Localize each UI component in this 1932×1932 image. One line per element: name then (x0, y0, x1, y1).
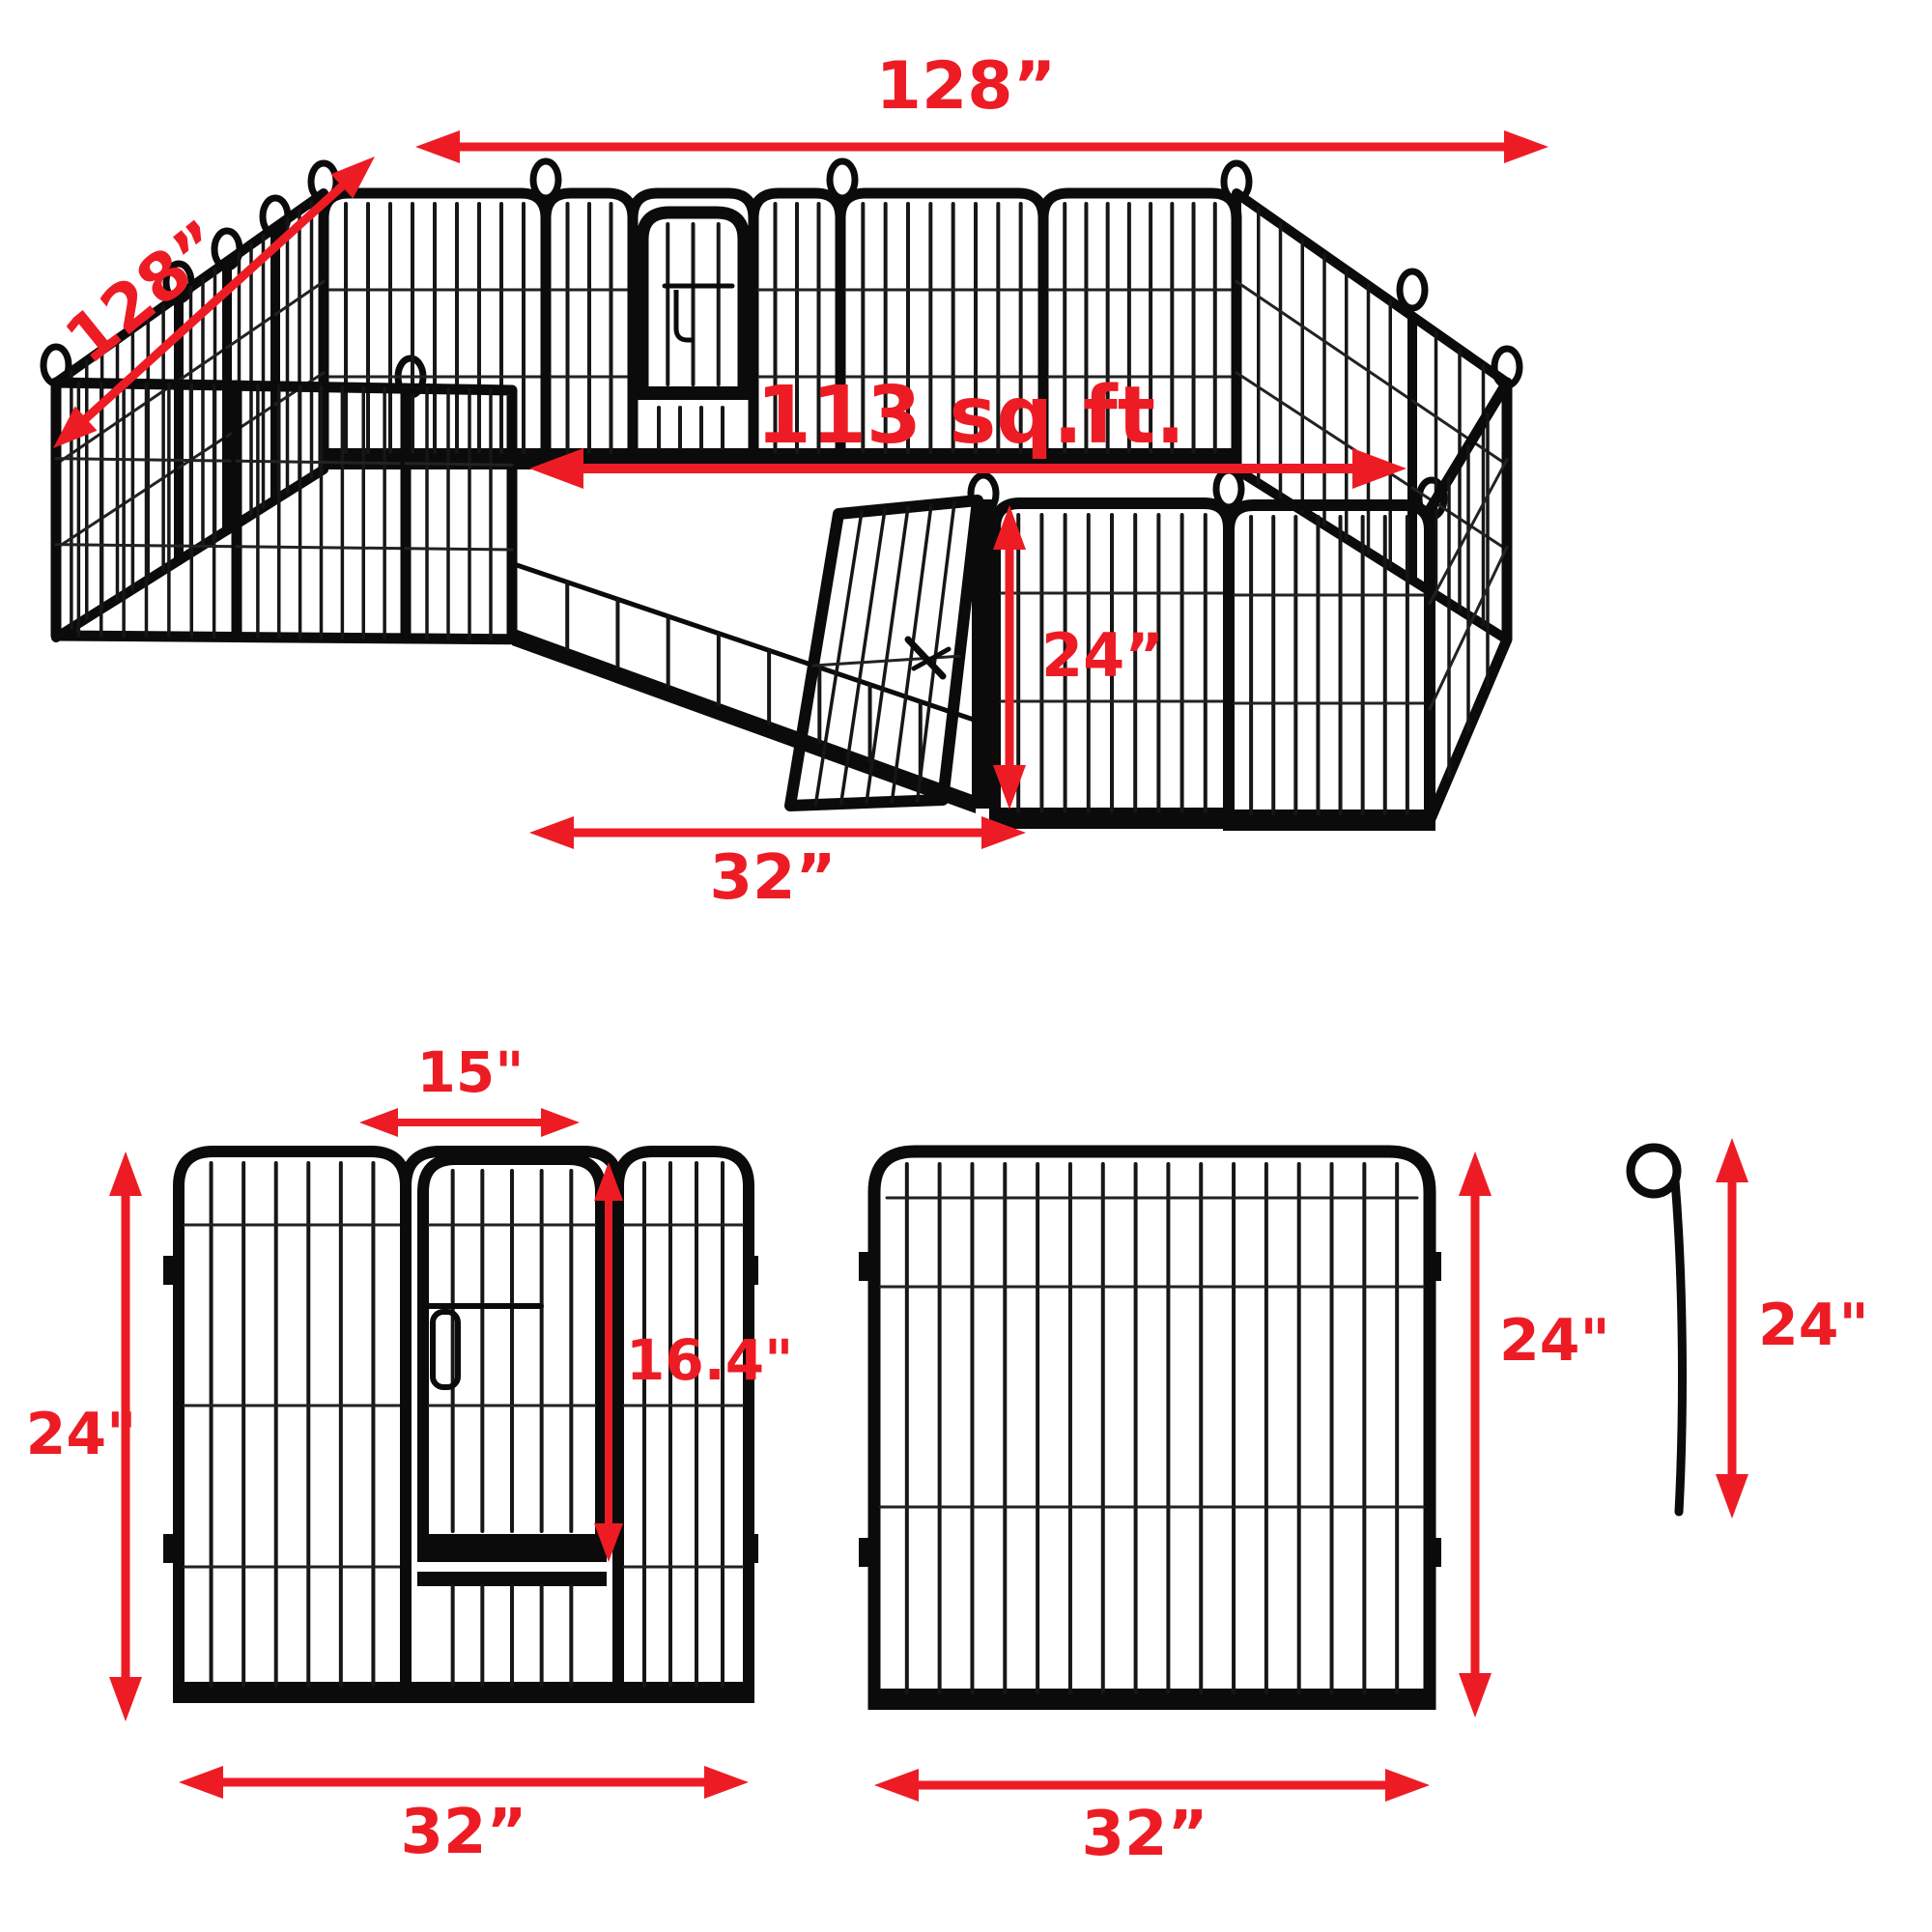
dim-door-width: 15" (359, 1039, 580, 1137)
plain-panel-figure: 24" 32” (859, 1151, 1610, 1870)
playpen-dimension-diagram: 128” 128” 113 sq.ft. 24” 32” 15" 24" (0, 0, 1932, 1932)
door-width-arrow (359, 1108, 580, 1137)
door-height-label: 16.4" (626, 1327, 793, 1393)
ground-stake-figure: 24" (1631, 1138, 1869, 1519)
plain-panel-structure (859, 1151, 1441, 1710)
plain-panel-height-arrow (1459, 1151, 1492, 1718)
front-panel-height-label: 24” (1041, 620, 1164, 691)
diagram-canvas: 128” 128” 113 sq.ft. 24” 32” 15" 24" (0, 0, 1932, 1932)
top-width-arrow (415, 130, 1548, 163)
door-width-label: 15" (417, 1039, 525, 1105)
stake-height-label: 24" (1758, 1292, 1869, 1359)
door-panel-structure (163, 1151, 758, 1703)
dim-door-panel-width: 32” (179, 1766, 749, 1868)
plain-panel-width-label: 32” (1081, 1799, 1207, 1870)
dim-plain-panel-width: 32” (874, 1769, 1430, 1870)
door-panel-figure: 15" 24" 16.4" 32” (26, 1039, 794, 1868)
side-depth-label: 128” (51, 207, 240, 380)
door-panel-width-arrow (179, 1766, 749, 1799)
plain-panel-width-arrow (874, 1769, 1430, 1802)
ground-stake-structure (1631, 1148, 1682, 1512)
dim-door-panel-height: 24" (26, 1151, 142, 1721)
dim-front-section-width: 32” (529, 816, 1026, 914)
front-section-width-label: 32” (709, 842, 836, 914)
plain-panel-height-label: 24" (1499, 1307, 1610, 1375)
door-panel-width-label: 32” (400, 1797, 526, 1868)
dim-top-width: 128” (415, 48, 1548, 163)
dim-stake-height: 24" (1716, 1138, 1869, 1519)
dim-plain-panel-height: 24" (1459, 1151, 1610, 1718)
assembled-playpen-figure: 128” 128” 113 sq.ft. 24” 32” (43, 48, 1548, 914)
top-width-label: 128” (876, 48, 1057, 125)
stake-height-arrow (1716, 1138, 1748, 1519)
door-panel-height-label: 24" (26, 1401, 137, 1468)
interior-area-label: 113 sq.ft. (756, 370, 1185, 462)
